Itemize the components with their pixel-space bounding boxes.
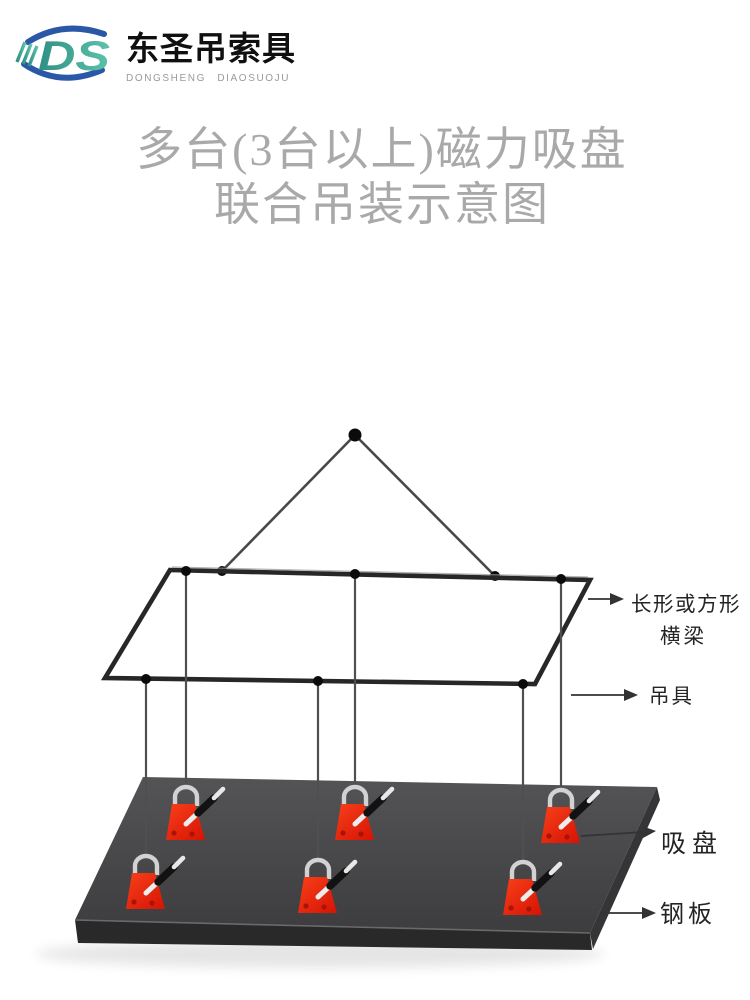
bolt-dot bbox=[171, 830, 176, 835]
beam-attachment-dot bbox=[350, 569, 360, 579]
arrow-right-icon bbox=[624, 689, 638, 701]
spreader-beam bbox=[105, 567, 590, 684]
bolt-dot bbox=[340, 830, 345, 835]
bolt-dot bbox=[526, 906, 531, 911]
bolt-dot bbox=[358, 831, 363, 836]
arrow-right-icon bbox=[610, 593, 624, 605]
beam-attachment-dot bbox=[556, 574, 566, 584]
bolt-dot bbox=[189, 831, 194, 836]
plate-callout: 钢板 bbox=[600, 901, 716, 928]
lifting-diagram: 长形或方形 横梁 吊具 吸盘 钢板 bbox=[0, 0, 750, 1000]
rigging-callout: 吊具 bbox=[571, 686, 694, 708]
arrow-right-icon bbox=[642, 826, 656, 838]
bolt-dot bbox=[303, 903, 308, 908]
bolt-dot bbox=[321, 904, 326, 909]
beam-attachment-dot bbox=[181, 566, 191, 576]
beam-attachment-dot bbox=[518, 679, 528, 689]
beam-label-line2: 横梁 bbox=[660, 625, 707, 648]
rigging-label: 吊具 bbox=[649, 686, 694, 708]
sling-leg-right bbox=[355, 435, 495, 576]
bolt-dot bbox=[131, 899, 136, 904]
page: DS 东圣吊索具 DONGSHENG DIAOSUOJU 多台(3台以上)磁力吸… bbox=[0, 0, 750, 1000]
beam-label-line1: 长形或方形 bbox=[631, 593, 741, 616]
arrow-right-icon bbox=[642, 907, 656, 919]
beam-callout: 长形或方形 横梁 bbox=[588, 593, 741, 648]
beam-attachment-dot bbox=[313, 676, 323, 686]
crane-hook-point-dot bbox=[349, 429, 362, 442]
sling-leg-left bbox=[222, 435, 355, 571]
beam-frame bbox=[105, 570, 590, 684]
plate-label: 钢板 bbox=[660, 901, 716, 928]
bolt-dot bbox=[149, 900, 154, 905]
bolt-dot bbox=[508, 905, 513, 910]
beam-attachment-dot bbox=[141, 674, 151, 684]
bolt-dot bbox=[546, 833, 551, 838]
sling-triangle bbox=[217, 429, 500, 582]
magnet-label: 吸盘 bbox=[661, 830, 723, 858]
bolt-dot bbox=[564, 834, 569, 839]
